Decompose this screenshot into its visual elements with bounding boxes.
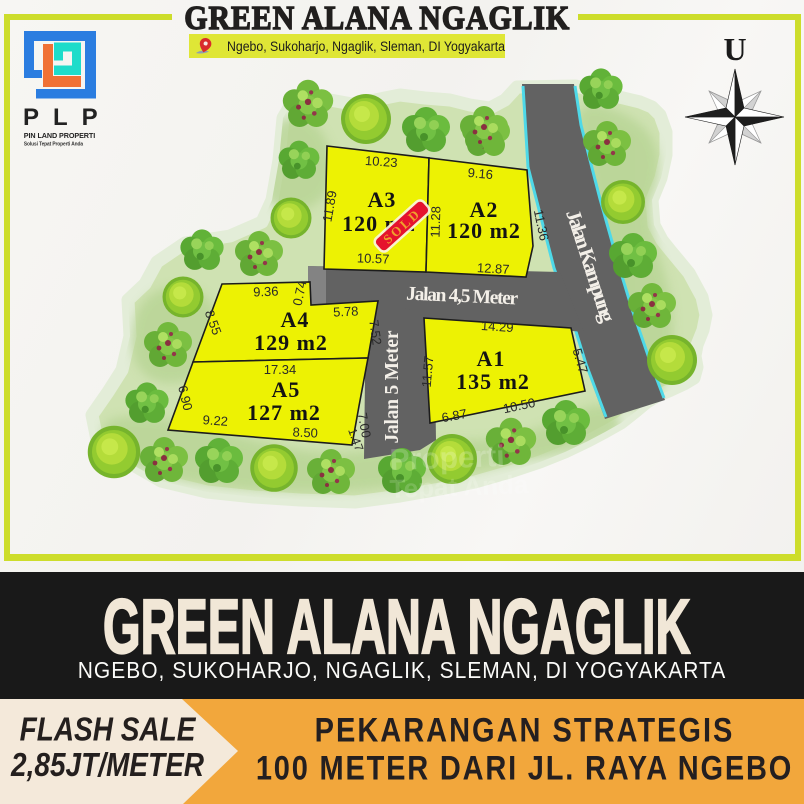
svg-text:135 m2: 135 m2 bbox=[456, 369, 530, 394]
svg-text:9.36: 9.36 bbox=[253, 284, 279, 300]
svg-text:A4: A4 bbox=[281, 307, 310, 332]
svg-text:Jalan 5 Meter: Jalan 5 Meter bbox=[382, 330, 403, 443]
svg-text:17.34: 17.34 bbox=[264, 362, 297, 377]
svg-text:127 m2: 127 m2 bbox=[247, 400, 321, 425]
svg-text:8.50: 8.50 bbox=[292, 424, 318, 440]
svg-text:120 m2: 120 m2 bbox=[447, 218, 521, 243]
svg-text:12.87: 12.87 bbox=[477, 260, 510, 277]
svg-text:10.57: 10.57 bbox=[357, 250, 390, 266]
svg-text:A1: A1 bbox=[477, 346, 506, 371]
svg-text:A3: A3 bbox=[368, 187, 397, 212]
svg-text:14.29: 14.29 bbox=[481, 318, 515, 335]
svg-text:10.23: 10.23 bbox=[365, 153, 399, 170]
svg-text:9.22: 9.22 bbox=[202, 412, 228, 429]
svg-text:Tepat Anda: Tepat Anda bbox=[389, 469, 529, 504]
svg-text:5.78: 5.78 bbox=[333, 303, 359, 319]
svg-text:9.16: 9.16 bbox=[467, 165, 494, 182]
svg-text:11.57: 11.57 bbox=[419, 355, 437, 388]
svg-text:A5: A5 bbox=[272, 377, 301, 402]
svg-text:129 m2: 129 m2 bbox=[254, 330, 328, 355]
